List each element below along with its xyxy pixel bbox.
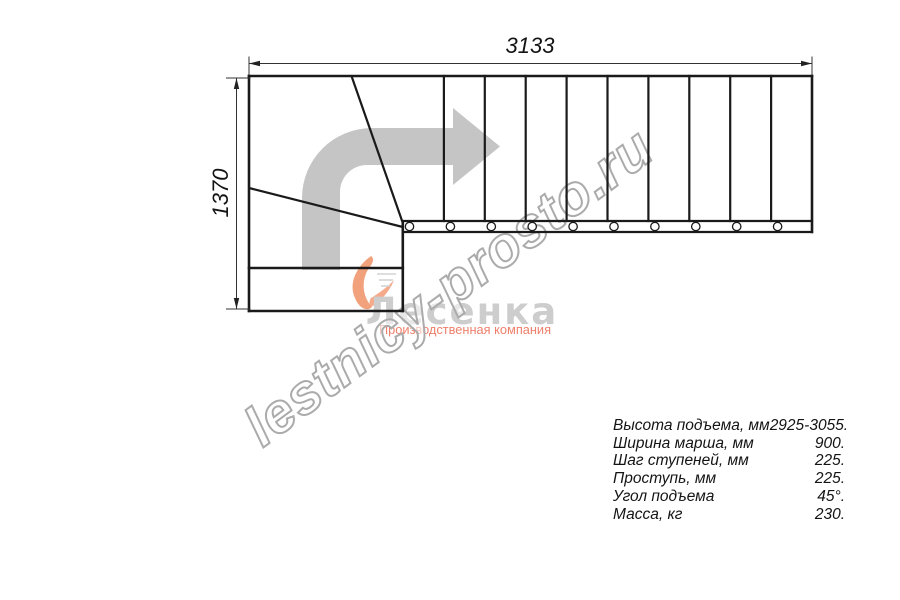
baluster-circle: [528, 222, 536, 230]
baluster-circle: [773, 222, 781, 230]
spec-table: Высота подъема, мм 2925-3055. Ширина мар…: [613, 417, 845, 523]
spec-value: 230.: [815, 506, 845, 524]
baluster-circle: [733, 222, 741, 230]
spec-row: Шаг ступеней, мм 225.: [613, 452, 845, 470]
dim-arrow-right-icon: [801, 61, 812, 66]
spec-label: Угол подъема: [613, 488, 714, 506]
winder-line-2: [249, 188, 403, 227]
stair-outline: [249, 76, 812, 311]
spec-row: Проступь, мм 225.: [613, 470, 845, 488]
dimension-width-label: 3133: [506, 33, 556, 58]
spec-value: 225.: [815, 452, 845, 470]
spec-value: 900.: [815, 435, 845, 453]
baluster-circles: [405, 222, 782, 230]
spec-row: Угол подъема 45°.: [613, 488, 845, 506]
spec-value: 2925-3055.: [770, 417, 848, 435]
spec-value: 45°.: [817, 488, 845, 506]
tread-lines: [444, 76, 771, 221]
baluster-circle: [651, 222, 659, 230]
stringer-rail: [403, 221, 812, 232]
baluster-circle: [610, 222, 618, 230]
dimension-height-label: 1370: [208, 168, 233, 218]
baluster-circle: [405, 222, 413, 230]
baluster-circle: [692, 222, 700, 230]
dimension-top: 3133: [249, 33, 812, 75]
dimension-left: 1370: [208, 78, 251, 309]
winder-line-1: [352, 76, 403, 223]
spec-label: Проступь, мм: [613, 470, 716, 488]
spec-label: Высота подъема, мм: [613, 417, 770, 435]
baluster-circle: [569, 222, 577, 230]
dim-arrow-left-icon: [249, 61, 260, 66]
spec-label: Ширина марша, мм: [613, 435, 754, 453]
baluster-circle: [446, 222, 454, 230]
spec-row: Масса, кг 230.: [613, 506, 845, 524]
dim-arrow-down-icon: [234, 298, 239, 309]
spec-row: Высота подъема, мм 2925-3055.: [613, 417, 845, 435]
spec-label: Масса, кг: [613, 506, 682, 524]
spec-label: Шаг ступеней, мм: [613, 452, 749, 470]
spec-row: Ширина марша, мм 900.: [613, 435, 845, 453]
spec-value: 225.: [815, 470, 845, 488]
stair-drawing-canvas: Лесенка Производственная компания lestni…: [0, 0, 900, 600]
baluster-circle: [487, 222, 495, 230]
winder-lines: [249, 76, 403, 227]
dim-arrow-up-icon: [234, 78, 239, 89]
